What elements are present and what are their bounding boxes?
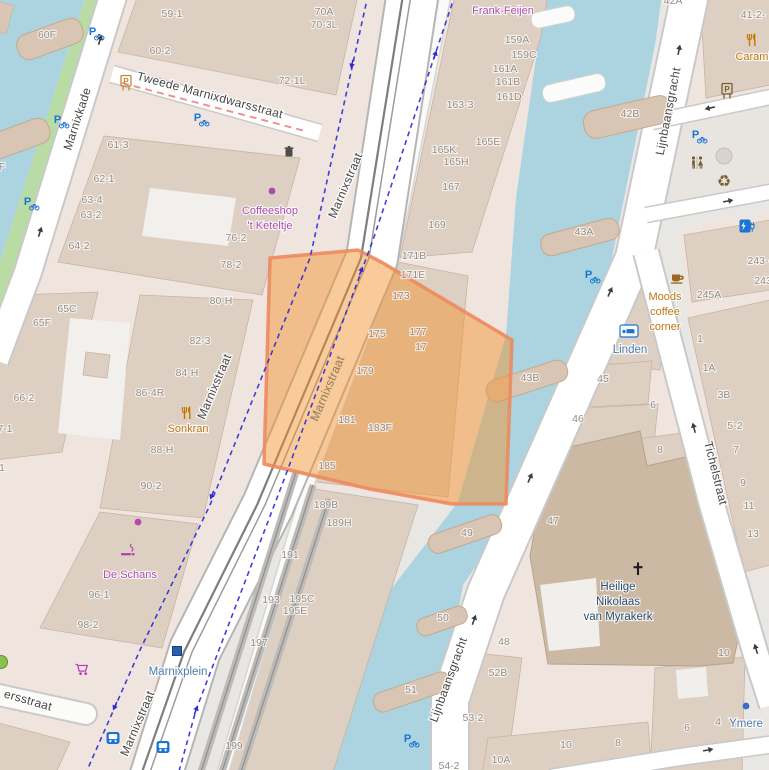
housenumber-label: 7	[733, 444, 739, 456]
waste-basket-icon	[285, 146, 294, 157]
housenumber-label: 163-3	[447, 99, 474, 111]
church-label-line2: Nikolaas	[596, 596, 640, 608]
housenumber-label: 48	[498, 636, 510, 648]
housenumber-label: 165E	[476, 136, 501, 148]
housenumber-label: 5-2	[727, 420, 742, 432]
plaza-circle	[716, 148, 732, 164]
housenumber-label: 90-2	[140, 480, 161, 492]
housenumber-label: 82-3	[189, 335, 210, 347]
housenumber-label: 78-2	[220, 259, 241, 271]
cafe-label-moods-2: coffee	[650, 306, 680, 318]
church-label-line1: Heilige	[600, 581, 635, 593]
housenumber-label: 169	[428, 219, 446, 231]
shop-label-frank-feijen: Frank-Feijen	[472, 5, 534, 17]
cafe-icon	[671, 275, 684, 284]
office-label-ymere: Ymere	[729, 718, 763, 730]
housenumber-label: 70A	[315, 6, 334, 18]
housenumber-label: 10	[718, 647, 730, 659]
cafe-label-moods-3: corner	[649, 321, 681, 333]
housenumber-label: 41-2-	[741, 9, 766, 21]
shop-label-keteltje: 't Keteltje	[248, 220, 293, 232]
hotel-label-linden: Linden	[613, 344, 648, 356]
housenumber-label: 63-2	[80, 209, 101, 221]
housenumber-label: 45	[597, 373, 609, 385]
housenumber-label: 179	[356, 365, 374, 377]
restaurant-label-carambola: Caramb	[735, 51, 769, 63]
housenumber-label: 66-2	[13, 392, 34, 404]
housenumber-label: 70-3L	[311, 19, 338, 31]
housenumber-label: 10A	[492, 754, 511, 766]
tram-stop-icon	[173, 647, 182, 656]
cafe-label-moods-1: Moods	[648, 291, 682, 303]
church-label-line3: van Myrakerk	[583, 611, 652, 623]
housenumber-label: 11	[744, 500, 755, 512]
shop-dot-icon	[269, 188, 276, 195]
housenumber-label: 88-H	[151, 444, 174, 456]
recycling-icon	[717, 174, 731, 191]
housenumber-label: 98-2	[77, 619, 98, 631]
bus-stop-icon	[157, 741, 170, 753]
housenumber-label: 195C	[289, 593, 315, 605]
housenumber-label: 46	[572, 413, 584, 425]
housenumber-label: 60-2	[149, 45, 170, 57]
housenumber-label: 62-1	[93, 173, 114, 185]
housenumber-label: 9	[740, 477, 746, 489]
housenumber-label: 175	[368, 328, 386, 340]
housenumber-label: 1A	[703, 362, 716, 374]
housenumber-label: 171B	[402, 250, 427, 262]
shop-dot-icon	[135, 519, 142, 526]
housenumber-label: 195E	[283, 605, 308, 617]
bus-stop-icon	[107, 732, 120, 744]
housenumber-label: 72-1L	[279, 75, 306, 87]
housenumber-label: 96-1	[88, 589, 109, 601]
housenumber-label: 6	[650, 399, 656, 411]
shop-label-de-schans: De Schans	[103, 569, 157, 581]
housenumber-label: 10	[560, 739, 572, 751]
housenumber-label: 185	[318, 460, 336, 472]
housenumber-label: 165K	[432, 144, 457, 156]
housenumber-label: 4	[715, 716, 721, 728]
hotel-bed-icon	[620, 325, 638, 337]
housenumber-label: 59-1	[161, 8, 182, 20]
housenumber-label: 54-2	[438, 760, 459, 770]
housenumber-label: 1	[0, 462, 5, 474]
housenumber-label: 173	[392, 290, 410, 302]
housenumber-label: 42A	[664, 0, 683, 7]
housenumber-label: 243	[754, 275, 769, 287]
housenumber-label: 3B	[718, 389, 731, 401]
housenumber-label: 86-4R	[136, 387, 165, 399]
housenumber-label: 165H	[443, 156, 468, 168]
housenumber-label: 43B	[521, 372, 540, 384]
housenumber-label: 245A	[697, 289, 722, 301]
housenumber-label: 161D	[496, 91, 522, 103]
housenumber-label: 61-3	[107, 139, 128, 151]
housenumber-label: 191	[281, 549, 299, 561]
housenumber-label: 6	[684, 722, 690, 734]
housenumber-label: 49	[461, 527, 473, 539]
housenumber-label: 8	[615, 737, 621, 749]
housenumber-label: 50	[437, 612, 449, 624]
housenumber-label: 193	[262, 594, 280, 606]
housenumber-label: 42B	[621, 108, 640, 120]
shop-label-coffeeshop: Coffeeshop	[242, 205, 298, 217]
housenumber-label: 197	[250, 637, 268, 649]
housenumber-label: 51	[405, 684, 417, 696]
housenumber-label: 159C	[511, 49, 537, 61]
housenumber-label: 84-H	[176, 367, 199, 379]
housenumber-label: 60F	[38, 29, 56, 41]
housenumber-label: 8	[657, 444, 663, 456]
housenumber-label: 161B	[496, 76, 521, 88]
housenumber-label: F	[0, 161, 5, 173]
office-dot-icon	[743, 703, 750, 710]
housenumber-label: 76-2	[225, 232, 246, 244]
tram-stop-label-marnixplein: Marnixplein	[149, 666, 208, 678]
housenumber-label: 65F	[33, 317, 51, 329]
housenumber-label: 64-2	[68, 240, 89, 252]
housenumber-label: 159A	[505, 34, 530, 46]
housenumber-label: 189B	[314, 499, 339, 511]
housenumber-label: 199	[225, 740, 243, 752]
housenumber-label: 52B	[489, 667, 508, 679]
housenumber-label: 17	[415, 341, 427, 353]
restaurant-label-sonkran: Sonkran	[168, 423, 209, 435]
map-canvas: P P	[0, 0, 769, 770]
housenumber-label: 63-4	[81, 194, 102, 206]
housenumber-label: 43A	[575, 226, 594, 238]
housenumber-label: 181	[338, 414, 356, 426]
housenumber-label: 177	[409, 326, 427, 338]
housenumber-label: 243-	[747, 255, 769, 267]
housenumber-label: 171E	[401, 269, 426, 281]
housenumber-label: 67-1	[0, 423, 13, 435]
map-viewport[interactable]: P P	[0, 0, 769, 770]
housenumber-label: 167	[442, 181, 460, 193]
housenumber-label: 13	[747, 528, 759, 540]
housenumber-label: 47	[547, 515, 559, 527]
housenumber-label: 80-H	[210, 295, 233, 307]
housenumber-label: 183F	[368, 422, 392, 434]
housenumber-label: 161A	[493, 63, 518, 75]
housenumber-label: 65C	[57, 303, 77, 315]
housenumber-label: 53-2	[462, 712, 483, 724]
housenumber-label: 1	[697, 333, 703, 345]
housenumber-label: 189H	[326, 517, 351, 529]
